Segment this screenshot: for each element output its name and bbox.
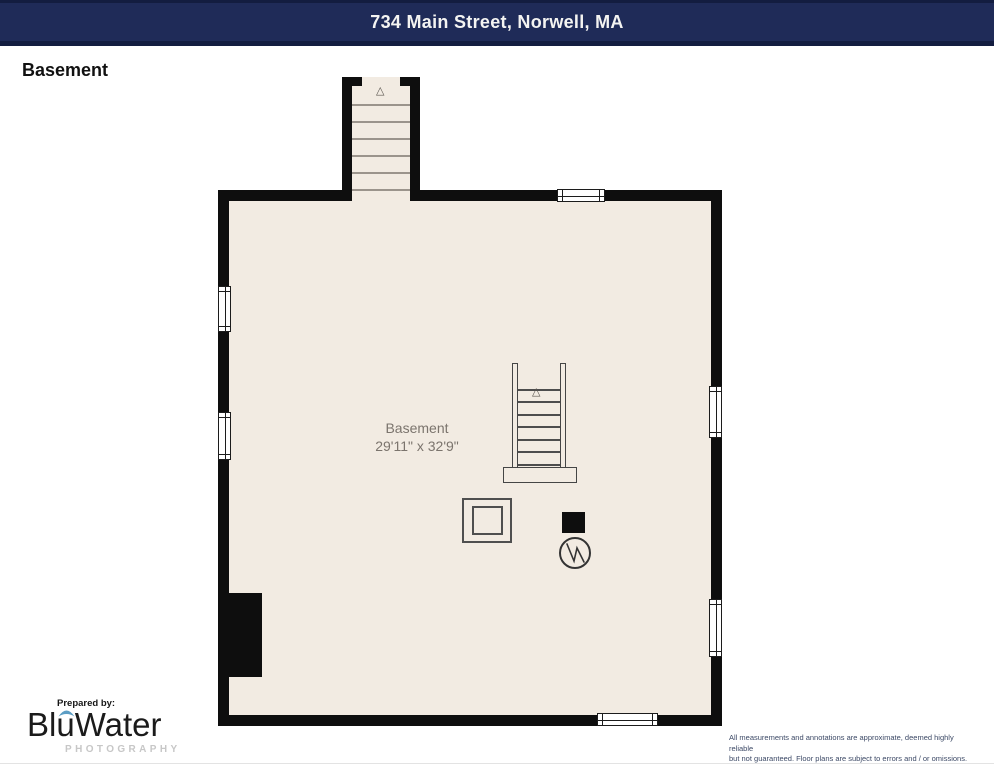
window-glass-line bbox=[225, 287, 226, 331]
utility-block bbox=[562, 512, 585, 533]
stair-tread bbox=[517, 439, 561, 441]
window-glass-line bbox=[225, 413, 226, 459]
window-left-wall-upper bbox=[218, 286, 231, 332]
basement-room-outline bbox=[218, 190, 722, 726]
stair-tread bbox=[352, 138, 410, 140]
window-frame-line bbox=[710, 391, 721, 392]
window-frame-line bbox=[219, 291, 230, 292]
window-glass-line bbox=[716, 387, 717, 437]
stair-tread bbox=[517, 464, 561, 466]
disclaimer-text: All measurements and annotations are app… bbox=[729, 733, 979, 765]
address-title: 734 Main Street, Norwell, MA bbox=[370, 12, 623, 33]
stair-tread bbox=[352, 104, 410, 106]
stairs-up-icon: △ bbox=[532, 386, 540, 397]
photography-label: PHOTOGRAPHY bbox=[65, 744, 181, 755]
window-glass-line bbox=[558, 196, 604, 197]
stair-tread bbox=[517, 451, 561, 453]
stair-tread bbox=[517, 401, 561, 403]
furnace-icon bbox=[462, 498, 512, 543]
window-right-wall-upper bbox=[709, 386, 722, 438]
window-frame-line bbox=[599, 190, 600, 201]
window-frame-line bbox=[219, 326, 230, 327]
address-header: 734 Main Street, Norwell, MA bbox=[0, 0, 994, 46]
window-right-wall-lower bbox=[709, 599, 722, 657]
bluwater-drop-icon bbox=[58, 709, 75, 717]
staircase-landing bbox=[503, 467, 577, 483]
furnace-inner-outline bbox=[472, 506, 503, 535]
window-frame-line bbox=[219, 417, 230, 418]
window-frame-line bbox=[710, 651, 721, 652]
stairs-up-icon: △ bbox=[376, 85, 384, 96]
stair-tread bbox=[352, 121, 410, 123]
window-glass-line bbox=[716, 600, 717, 656]
room-name: Basement bbox=[337, 419, 497, 437]
window-frame-line bbox=[652, 714, 653, 725]
window-frame-line bbox=[710, 604, 721, 605]
stair-tread bbox=[352, 155, 410, 157]
floor-label: Basement bbox=[22, 60, 108, 81]
stair-tread bbox=[352, 189, 410, 191]
stair-tread bbox=[517, 414, 561, 416]
chimney-block bbox=[220, 593, 262, 677]
window-bottom-wall bbox=[597, 713, 658, 726]
room-label: Basement 29'11" x 32'9" bbox=[337, 419, 497, 455]
window-glass-line bbox=[598, 720, 657, 721]
disclaimer-line-1: All measurements and annotations are app… bbox=[729, 733, 979, 754]
bluwater-logo: BluWater bbox=[27, 706, 161, 744]
water-heater-icon bbox=[558, 536, 592, 570]
stairwell-wall-stub bbox=[352, 77, 362, 86]
staircase-rail-left bbox=[512, 363, 518, 469]
stair-tread bbox=[352, 172, 410, 174]
window-frame-line bbox=[602, 714, 603, 725]
page-bottom-divider bbox=[0, 763, 994, 764]
window-frame-line bbox=[710, 432, 721, 433]
window-left-wall-lower bbox=[218, 412, 231, 460]
staircase-rail-right bbox=[560, 363, 566, 469]
window-top-wall bbox=[557, 189, 605, 202]
window-frame-line bbox=[219, 454, 230, 455]
stairwell-wall-right bbox=[410, 77, 420, 201]
window-frame-line bbox=[562, 190, 563, 201]
stair-tread bbox=[517, 426, 561, 428]
room-dimensions: 29'11" x 32'9" bbox=[337, 437, 497, 455]
stairwell-wall-stub bbox=[400, 77, 410, 86]
stairwell-wall-left bbox=[342, 77, 352, 201]
